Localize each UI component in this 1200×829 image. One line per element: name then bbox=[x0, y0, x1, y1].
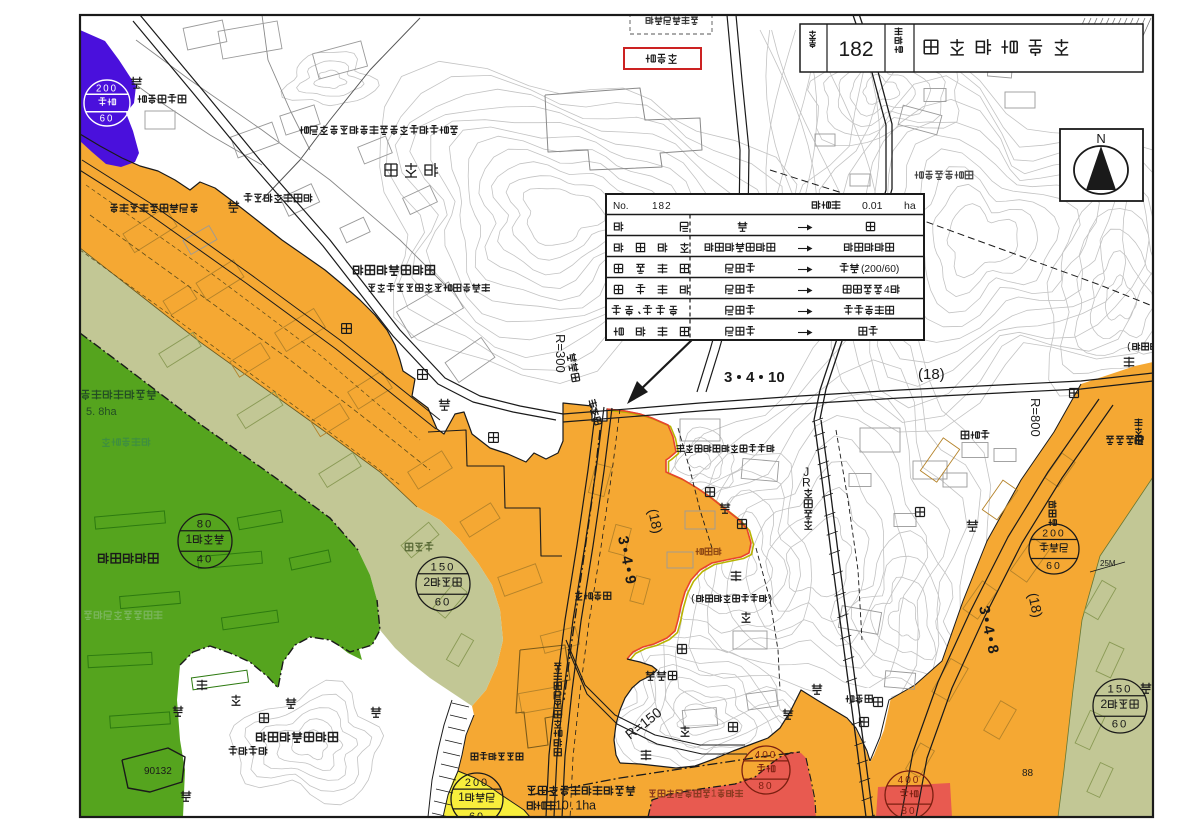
svg-text:60: 60 bbox=[1112, 719, 1129, 731]
svg-text:): ) bbox=[769, 594, 772, 605]
svg-text:4: 4 bbox=[884, 285, 890, 296]
svg-text:90132: 90132 bbox=[144, 766, 172, 777]
svg-text:60: 60 bbox=[1046, 560, 1062, 572]
svg-text:150: 150 bbox=[431, 562, 456, 574]
svg-text:3: 3 bbox=[724, 369, 732, 386]
svg-text:5. 8ha: 5. 8ha bbox=[86, 406, 117, 418]
svg-text:182: 182 bbox=[838, 38, 873, 61]
svg-text:80: 80 bbox=[901, 806, 916, 817]
svg-text:4: 4 bbox=[746, 369, 755, 386]
svg-text:(200/60): (200/60) bbox=[861, 264, 899, 275]
svg-text:150: 150 bbox=[1108, 684, 1133, 696]
svg-text:200: 200 bbox=[96, 83, 118, 94]
svg-text:(18): (18) bbox=[918, 366, 945, 383]
svg-text:R=300: R=300 bbox=[553, 334, 568, 373]
svg-text:.: . bbox=[570, 799, 574, 813]
svg-text:60: 60 bbox=[100, 113, 115, 124]
svg-text:(: ( bbox=[691, 594, 695, 605]
svg-text:200: 200 bbox=[1042, 528, 1066, 540]
svg-text:2: 2 bbox=[423, 575, 430, 589]
svg-text:400: 400 bbox=[898, 775, 921, 786]
svg-text:1: 1 bbox=[458, 790, 465, 804]
svg-text:0.01: 0.01 bbox=[862, 200, 883, 212]
svg-text:88: 88 bbox=[1022, 768, 1034, 779]
svg-text:10: 10 bbox=[768, 369, 785, 386]
svg-text:R: R bbox=[802, 476, 811, 490]
svg-text:N: N bbox=[1096, 131, 1105, 146]
svg-text:182: 182 bbox=[652, 201, 672, 212]
svg-text:1: 1 bbox=[185, 532, 192, 546]
svg-text:(: ( bbox=[1127, 342, 1131, 353]
svg-text:80: 80 bbox=[758, 781, 773, 792]
svg-text:a: a bbox=[589, 799, 596, 813]
svg-text:2: 2 bbox=[1100, 697, 1107, 711]
svg-text:1: 1 bbox=[711, 789, 717, 800]
svg-text:ha: ha bbox=[904, 200, 916, 212]
svg-text:400: 400 bbox=[755, 750, 778, 761]
svg-text:60: 60 bbox=[435, 597, 452, 609]
svg-text:40: 40 bbox=[197, 554, 214, 566]
svg-text:0: 0 bbox=[562, 799, 569, 813]
svg-text:80: 80 bbox=[197, 519, 214, 531]
svg-text:200: 200 bbox=[465, 777, 489, 789]
svg-text:R=800: R=800 bbox=[1028, 398, 1043, 437]
svg-text:No.: No. bbox=[613, 201, 629, 212]
